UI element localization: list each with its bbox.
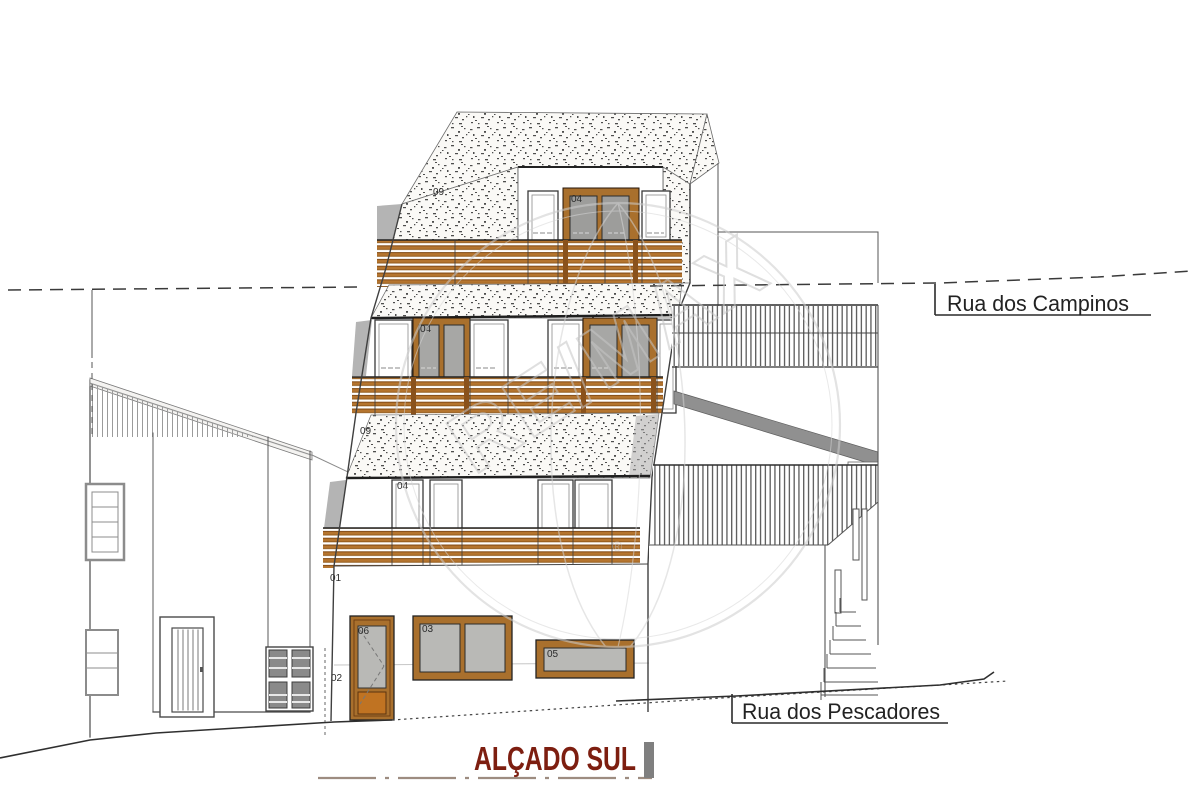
label-09-band: 09 <box>360 426 372 437</box>
street-name-pescadores: Rua dos Pescadores <box>742 699 940 724</box>
label-06: 06 <box>358 626 370 637</box>
label-01: 01 <box>330 573 342 584</box>
watermark-reg-symbol: ® <box>612 538 623 554</box>
ground-floor: 01 02 06 03 05 <box>325 564 660 738</box>
title-block: ALÇADO SUL <box>318 740 654 778</box>
balcony-low <box>323 528 640 568</box>
campinos-level-dash-left <box>8 287 362 290</box>
window-03: 03 <box>413 616 512 680</box>
neighbor-roof-eave-line <box>312 455 348 472</box>
street-label-campinos: Rua dos Campinos <box>935 284 1151 316</box>
label-04-floor2: 04 <box>420 324 432 335</box>
exterior-stairs <box>821 598 878 700</box>
street-label-pescadores: Rua dos Pescadores <box>732 694 948 724</box>
neighbor-louver-window-upper <box>86 484 124 560</box>
stair-ramp <box>674 391 878 466</box>
elevation-sheet: 09 04 <box>0 0 1196 800</box>
street-name-campinos: Rua dos Campinos <box>947 291 1129 316</box>
label-04-dormer: 04 <box>571 194 583 205</box>
elevation-drawing: 09 04 <box>0 0 1196 800</box>
title-end-bar <box>644 742 654 778</box>
label-03: 03 <box>422 624 434 635</box>
lower-railing <box>653 465 878 545</box>
neighbor-door <box>160 617 214 717</box>
ground-line-left <box>0 720 392 758</box>
window-05: 05 <box>536 640 634 678</box>
neighbor-building <box>86 378 348 737</box>
label-05: 05 <box>547 649 559 660</box>
balcony-low-slats <box>323 528 640 568</box>
neighbor-louver-window-lower <box>86 630 118 695</box>
label-09-roof: 09 <box>433 187 445 198</box>
entry-door-06: 06 <box>350 616 394 720</box>
door-knob <box>200 667 204 672</box>
drawing-title: ALÇADO SUL <box>474 740 636 777</box>
label-02: 02 <box>331 673 343 684</box>
neighbor-utility-panels <box>266 647 313 711</box>
